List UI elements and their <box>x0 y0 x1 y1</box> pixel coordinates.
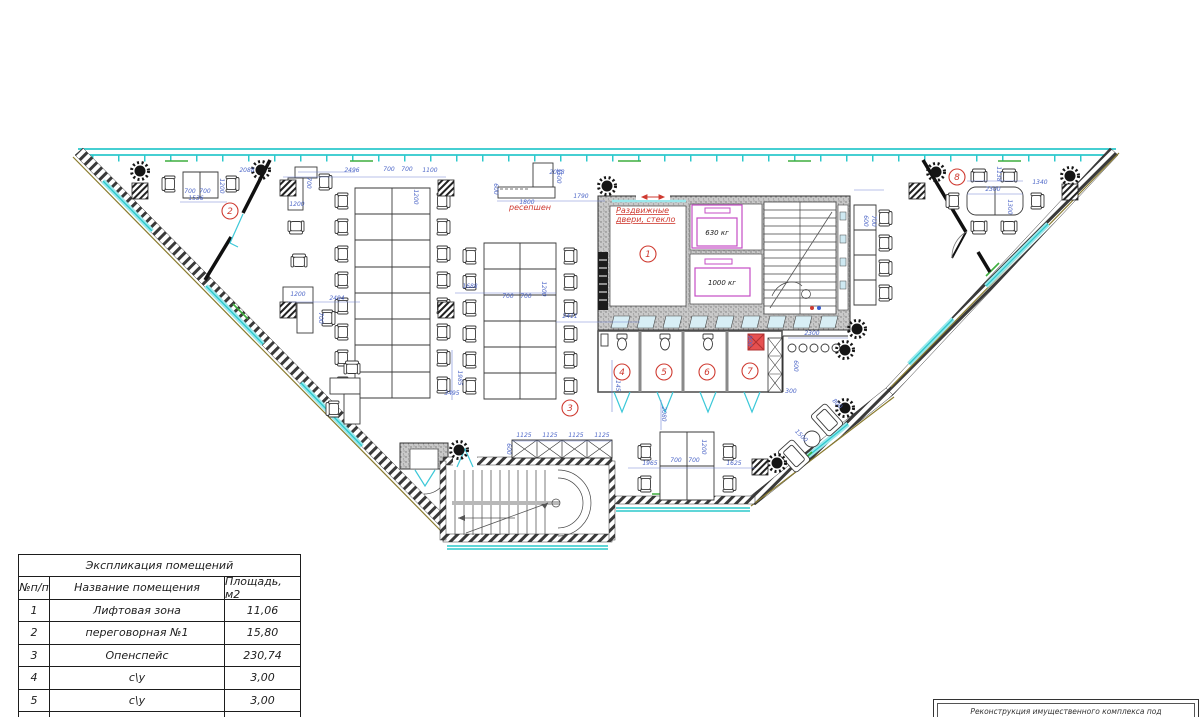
row-area: 15,80 <box>225 622 300 644</box>
wc-sink <box>601 334 608 346</box>
row-number: 6 <box>19 712 50 717</box>
svg-text:7: 7 <box>747 367 753 377</box>
sliding-door-opening <box>636 193 670 200</box>
dimension-label: 1340 <box>1032 179 1047 186</box>
stairwell-upper <box>764 202 836 314</box>
dimension-label: 300 <box>785 388 797 395</box>
title-block: Реконструкция имущественного комплекса п… <box>933 699 1199 717</box>
sliding-doors-label-line2: двери, стекло <box>615 215 675 224</box>
table-row: 2 переговорная №1 15,80 <box>18 622 301 645</box>
dimension-label: 1300 <box>1006 199 1013 214</box>
svg-text:2: 2 <box>227 207 233 217</box>
row-number: 1 <box>19 600 50 622</box>
table-row: 1 Лифтовая зона 11,06 <box>18 600 301 623</box>
dimension-label: 1200 <box>412 189 419 204</box>
dimension-label: 2088 <box>239 167 254 174</box>
window-glazing <box>103 181 1048 465</box>
dimension-label: 1125 <box>516 432 531 439</box>
room-number-bubble: 7 <box>742 363 758 379</box>
dimension-label: 700 <box>199 188 211 195</box>
dimension-label: 1790 <box>573 193 588 200</box>
dimension-label: 1138 <box>995 166 1002 181</box>
room-number-bubble: 1 <box>640 246 656 262</box>
elevator-630-label: 630 кг <box>705 229 729 237</box>
reception-desk <box>498 163 555 198</box>
row-number: 3 <box>19 645 50 667</box>
dimension-label: 700 <box>305 177 312 189</box>
explication-table: Экспликация помещений №п/п Название поме… <box>18 554 301 717</box>
duct-strip <box>838 205 848 310</box>
row-number: 4 <box>19 667 50 689</box>
svg-text:5: 5 <box>661 368 667 378</box>
room-number-bubble: 5 <box>656 364 672 380</box>
table-row: 3 Опенспейс 230,74 <box>18 645 301 668</box>
header-room-name: Название помещения <box>50 577 225 599</box>
svg-text:4: 4 <box>619 368 625 378</box>
dimension-label: 1125 <box>542 432 557 439</box>
row-name: с\у <box>50 690 225 712</box>
room-number-bubble: 8 <box>949 169 965 185</box>
dimension-label: 700 <box>401 166 413 173</box>
dimension-label: 700 <box>520 293 532 300</box>
wardrobe-lockers <box>768 336 848 392</box>
dimension-label: 1625 <box>726 460 741 467</box>
dimension-label: 600 <box>792 360 799 372</box>
row-number: 5 <box>19 690 50 712</box>
row-area: 3,00 <box>225 667 300 689</box>
dimension-label: 1688 <box>462 283 477 290</box>
svg-text:8: 8 <box>954 173 960 183</box>
floor-plan-svg: 630 кг 1000 кг Раздвижные <box>0 0 1200 560</box>
row-name: переговорная №1 <box>50 622 225 644</box>
room-number-bubble: 3 <box>562 400 578 416</box>
table-row: 6 с\у 3,00 <box>18 712 301 717</box>
row-name: с\у <box>50 667 225 689</box>
dimension-label: 1965 <box>642 460 657 467</box>
dimension-label: 1100 <box>422 167 437 174</box>
dimension-label: 900 <box>746 335 753 347</box>
dimension-label: 700 <box>670 457 682 464</box>
dimension-label: 1200 <box>540 281 547 296</box>
dimension-label: 2080 <box>660 406 667 421</box>
elevator-1000-label: 1000 кг <box>708 279 736 287</box>
table-row: 5 с\у 3,00 <box>18 690 301 713</box>
row-name: Опенспейс <box>50 645 225 667</box>
dimension-label: 700 <box>184 188 196 195</box>
wc-block <box>598 331 848 412</box>
row-name: Лифтовая зона <box>50 600 225 622</box>
dimension-label: 1200 <box>700 439 707 454</box>
title-block-text: Реконструкция имущественного комплекса п… <box>937 703 1195 717</box>
elevator-630: 630 кг <box>690 204 762 250</box>
dimension-label: 1125 <box>568 432 583 439</box>
dimension-label: 1200 <box>218 178 225 193</box>
table-row: 4 с\у 3,00 <box>18 667 301 690</box>
svg-text:1: 1 <box>645 250 651 260</box>
dimension-label: 2411 <box>562 313 577 320</box>
header-number: №п/п <box>19 577 50 599</box>
sliding-doors-label-line1: Раздвижные <box>616 206 669 215</box>
dimension-label: 2068 <box>549 169 564 176</box>
dimension-label: 1125 <box>594 432 609 439</box>
dimension-label: 600 <box>862 215 869 227</box>
elevator-1000: 1000 кг <box>690 254 762 304</box>
locker-strip <box>512 440 612 458</box>
explication-header-row: №п/п Название помещения Площадь, м2 <box>18 577 301 600</box>
row-number: 2 <box>19 622 50 644</box>
dimension-label: 600 <box>492 183 499 195</box>
dimension-label: 700 <box>502 293 514 300</box>
dimension-label: 1985 <box>456 370 463 385</box>
room-number-bubble: 4 <box>614 364 630 380</box>
riser-shaft <box>598 252 608 310</box>
row-area: 230,74 <box>225 645 300 667</box>
desk-bench-b <box>463 243 577 399</box>
dimension-label: 2300 <box>985 186 1000 193</box>
svg-text:6: 6 <box>704 368 710 378</box>
room-number-bubble: 2 <box>222 203 238 219</box>
dimension-label: 600 <box>505 443 512 455</box>
explication-title: Экспликация помещений <box>18 554 301 577</box>
wc-doors <box>614 392 760 412</box>
room-number-bubble: 6 <box>699 364 715 380</box>
dimension-label: 1200 <box>290 291 305 298</box>
core-block: 630 кг 1000 кг Раздвижные <box>598 193 850 330</box>
dimension-label: 3495 <box>444 390 459 397</box>
row-area: 11,06 <box>225 600 300 622</box>
dimension-label: 2496 <box>344 167 359 174</box>
dimension-label: 2494 <box>329 295 344 302</box>
dimension-label: 700 <box>688 457 700 464</box>
dimension-label: 1200 <box>289 201 304 208</box>
dimension-label: 700 <box>383 166 395 173</box>
svg-text:3: 3 <box>567 404 573 414</box>
dimension-label: 700 <box>870 215 877 227</box>
dimension-label: 2300 <box>804 330 819 337</box>
dimension-label: 700 <box>317 312 324 324</box>
dimension-label: 1536 <box>188 195 203 202</box>
row-name: с\у <box>50 712 225 717</box>
row-area: 3,00 <box>225 712 300 717</box>
header-area: Площадь, м2 <box>225 577 300 599</box>
core-window-band <box>611 316 838 328</box>
row-area: 3,00 <box>225 690 300 712</box>
dimension-label: 1800 <box>519 199 534 206</box>
